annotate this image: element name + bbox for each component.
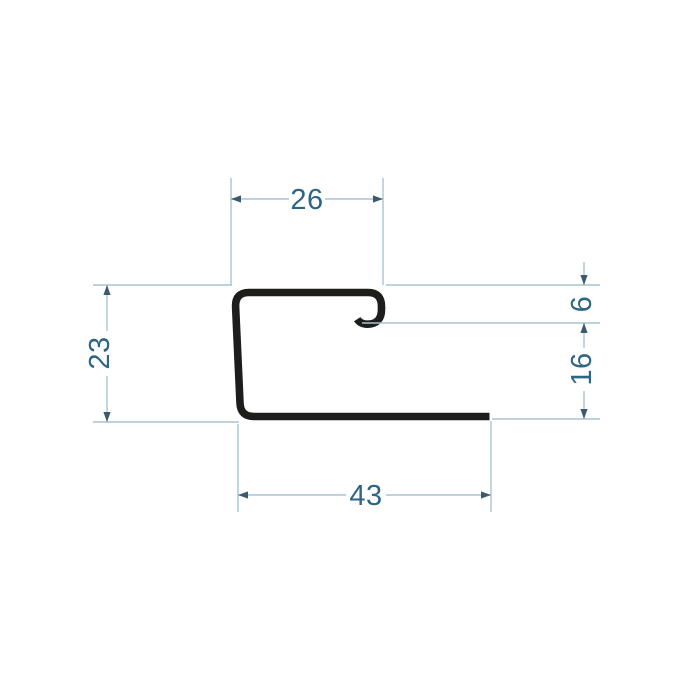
- arrow-left-icon: [231, 195, 241, 202]
- profile-outline: [236, 293, 490, 417]
- arrow-down-icon: [103, 412, 110, 422]
- arrow-left-icon: [238, 491, 248, 498]
- dimension-right-lower: 16: [492, 323, 600, 419]
- arrow-up-icon: [580, 323, 587, 333]
- dim-label-right-hook: 6: [566, 296, 598, 313]
- dim-label-bottom-width: 43: [349, 480, 382, 512]
- arrow-up-icon: [103, 285, 110, 295]
- arrow-right-icon: [481, 491, 491, 498]
- dimension-top-width: 26: [231, 178, 383, 285]
- arrow-down-icon: [580, 275, 587, 285]
- dimension-left-height: 23: [84, 285, 239, 422]
- arrow-right-icon: [373, 195, 383, 202]
- dim-label-right-lower: 16: [566, 352, 598, 385]
- arrow-down-icon: [580, 409, 587, 419]
- dimension-right-hook: 6: [362, 262, 600, 323]
- dim-label-left-height: 23: [84, 336, 116, 369]
- dim-label-top-width: 26: [290, 184, 323, 216]
- dimension-bottom-width: 43: [238, 421, 491, 512]
- technical-drawing-canvas: 26 23 6 16: [0, 0, 700, 700]
- technical-drawing-page: 26 23 6 16: [0, 0, 700, 700]
